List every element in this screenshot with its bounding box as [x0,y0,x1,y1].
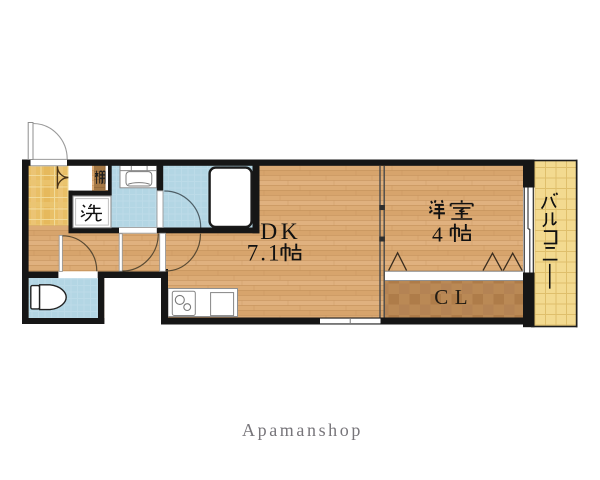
svg-text:7.1: 7.1 [247,240,282,265]
svg-text:4: 4 [432,223,443,247]
svg-text:Apamanshop: Apamanshop [242,420,363,440]
svg-text:CL: CL [434,285,474,309]
